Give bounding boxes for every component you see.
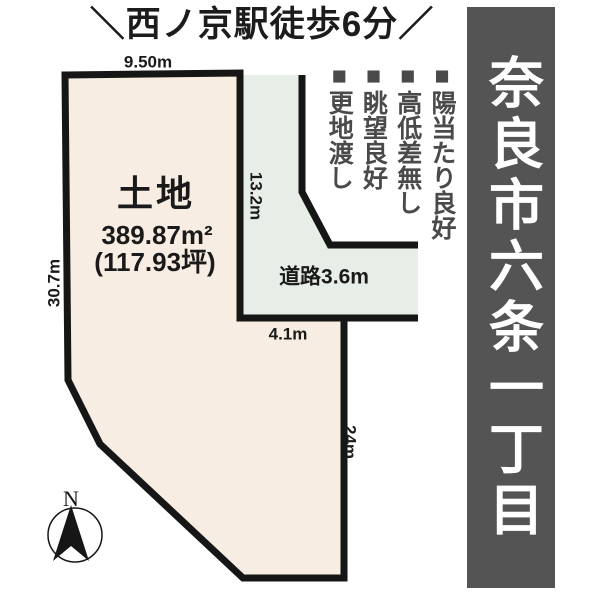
location-banner-text: 奈良市六条一丁目 (484, 54, 539, 542)
compass-icon: N (48, 486, 102, 562)
station-walk-note: ＼西ノ京駅徒歩6分／ (62, 3, 462, 47)
land-area-sqm: 389.87m² (101, 222, 212, 248)
land-area-tsubo: (117.93坪) (94, 249, 215, 275)
land-title: 土地 (117, 176, 195, 212)
dimension-inner-vertical: 13.2m (248, 172, 265, 220)
location-banner: 奈良市六条一丁目 (467, 7, 555, 588)
feature-good-view: ■眺望良好 (357, 62, 388, 240)
compass-north-label: N (63, 486, 79, 511)
feature-sunlight: ■陽当たり良好 (426, 62, 457, 240)
feature-vacant-land: ■更地渡し (323, 62, 354, 240)
dimension-top: 9.50m (124, 54, 172, 71)
dimension-right: 24m (342, 425, 359, 459)
feature-no-height-difference: ■高低差無し (392, 62, 423, 240)
land-plot-flyer: N ＼西ノ京駅徒歩6分／ 9.50m 30.7m 13.2m 24m 4.1m … (0, 0, 600, 600)
feature-list: ■陽当たり良好 ■高低差無し ■眺望良好 ■更地渡し (323, 62, 457, 240)
dimension-left: 30.7m (46, 259, 63, 307)
road-label: 道路3.6m (279, 267, 369, 288)
dimension-bottom-inner: 4.1m (269, 326, 308, 343)
